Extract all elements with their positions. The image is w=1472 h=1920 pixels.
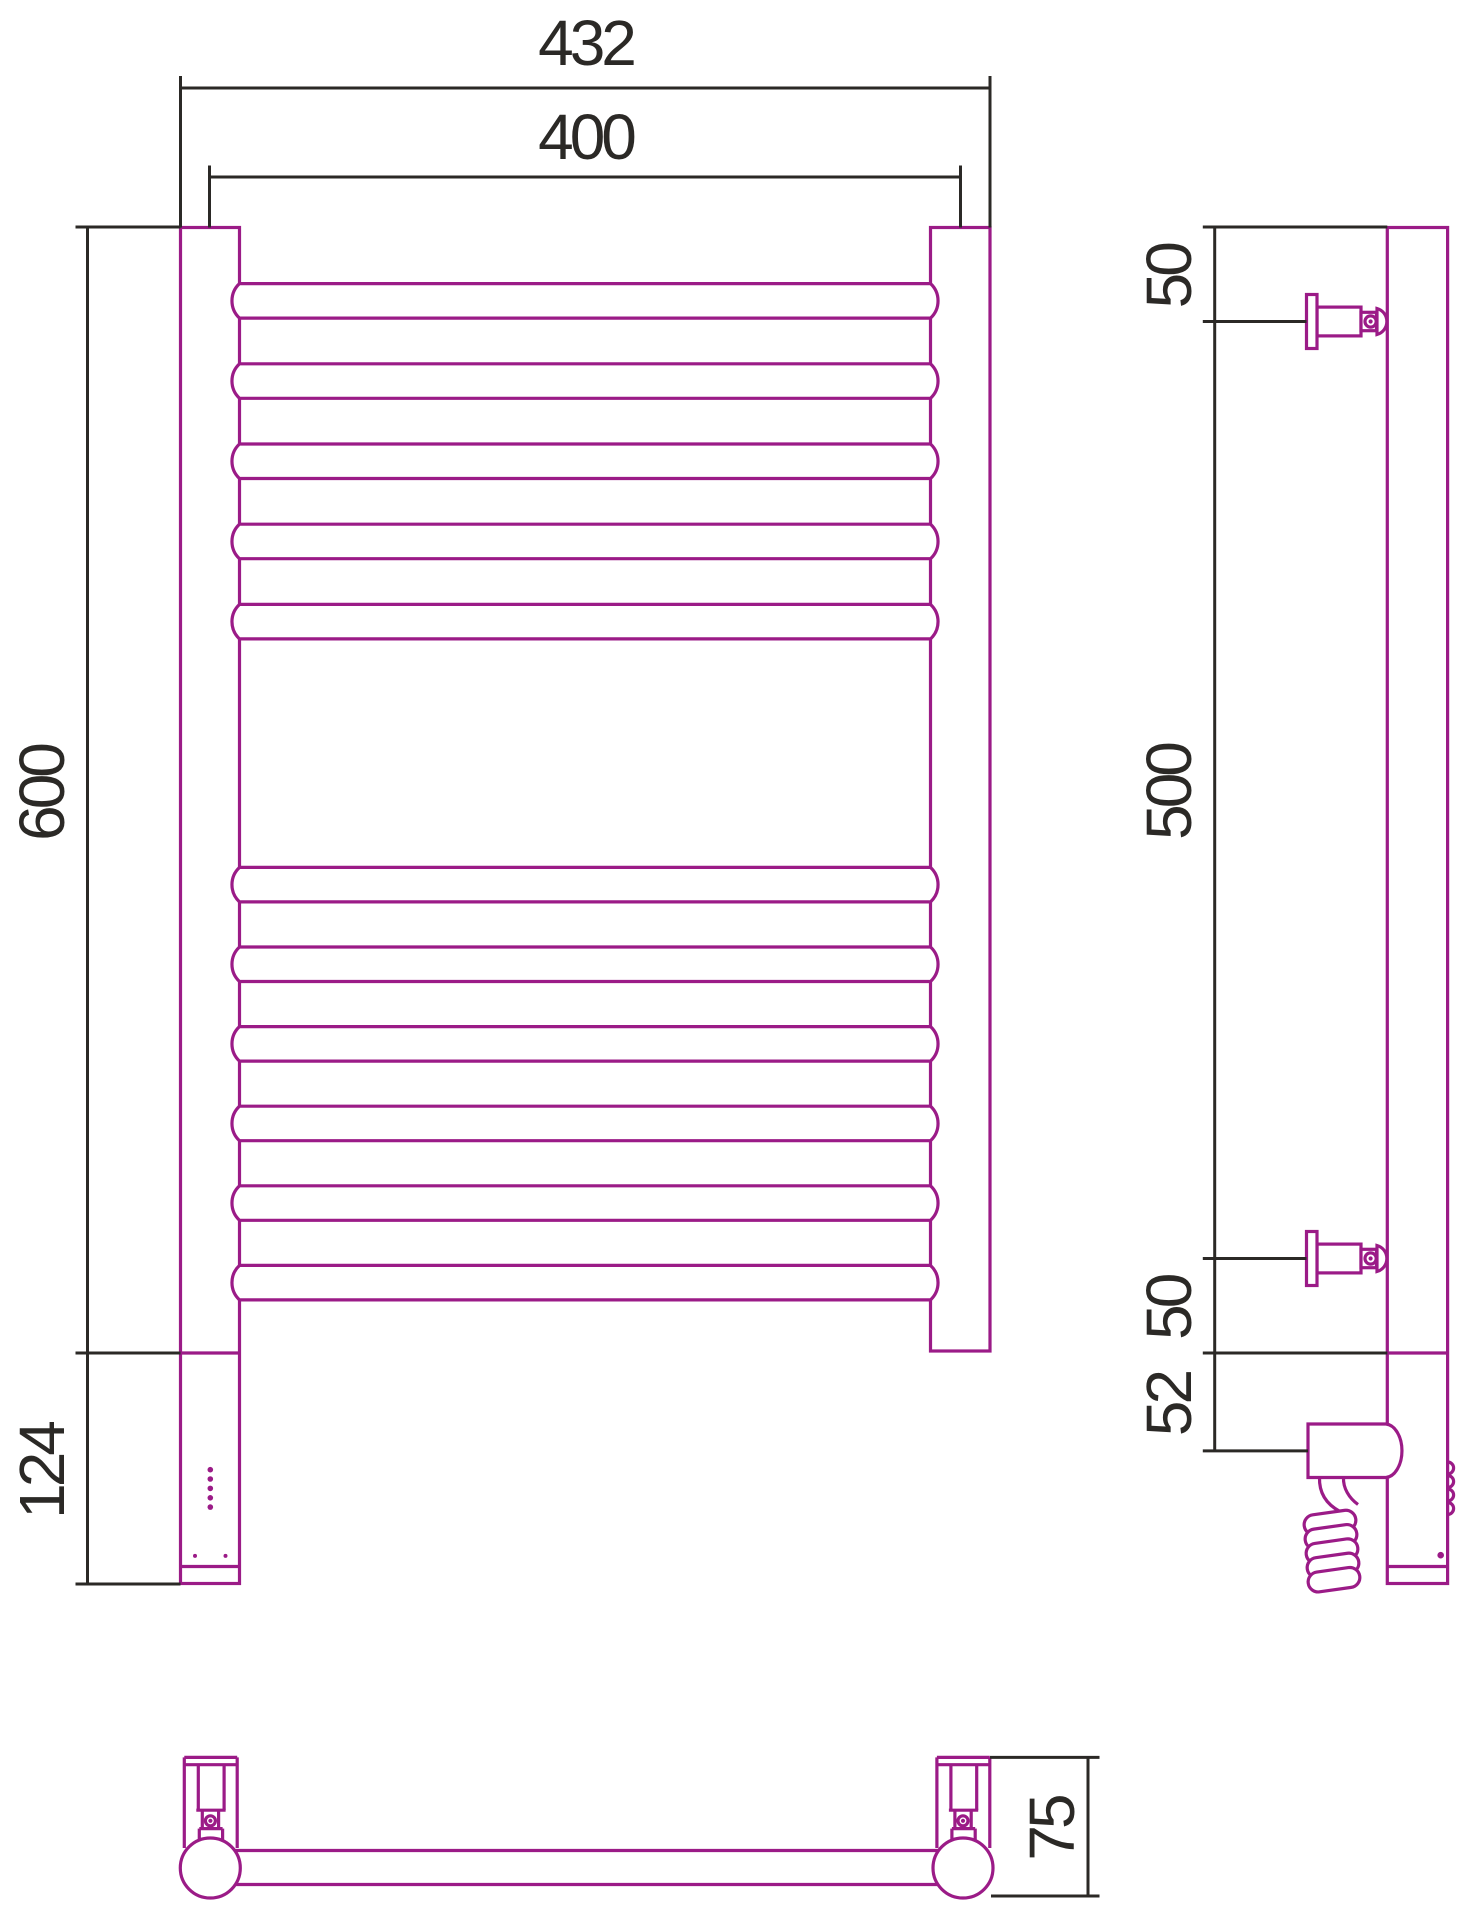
- svg-text:50: 50: [1133, 1274, 1205, 1340]
- svg-text:400: 400: [538, 101, 635, 173]
- svg-text:500: 500: [1133, 743, 1205, 840]
- svg-text:600: 600: [6, 744, 78, 841]
- svg-text:50: 50: [1133, 243, 1205, 309]
- svg-text:52: 52: [1133, 1372, 1205, 1437]
- svg-text:75: 75: [1016, 1796, 1088, 1861]
- svg-text:124: 124: [6, 1422, 78, 1519]
- svg-text:432: 432: [538, 7, 634, 79]
